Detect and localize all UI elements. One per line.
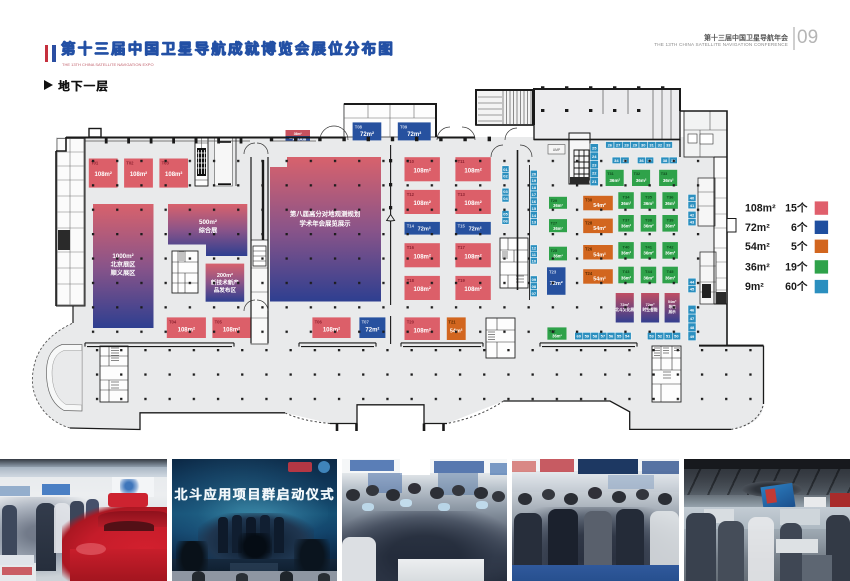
svg-text:T09: T09 <box>400 124 408 129</box>
svg-text:72m²: 72m² <box>745 222 770 234</box>
svg-text:108m²: 108m² <box>745 203 776 215</box>
svg-text:72m²: 72m² <box>407 131 421 138</box>
svg-text:15个: 15个 <box>785 202 808 215</box>
svg-text:5个: 5个 <box>791 240 808 253</box>
svg-text:31: 31 <box>649 142 654 147</box>
svg-text:9m²: 9m² <box>745 281 764 293</box>
svg-text:19个: 19个 <box>785 260 808 273</box>
svg-text:60个: 60个 <box>785 280 808 293</box>
svg-text:6个: 6个 <box>791 221 808 234</box>
svg-text:T08: T08 <box>355 124 363 129</box>
svg-text:27: 27 <box>616 142 621 147</box>
svg-text:32: 32 <box>658 142 663 147</box>
svg-text:26: 26 <box>608 142 613 147</box>
svg-text:28: 28 <box>624 142 629 147</box>
svg-text:29: 29 <box>633 142 638 147</box>
svg-text:25: 25 <box>592 146 597 151</box>
svg-text:33: 33 <box>666 142 671 147</box>
svg-text:54m²: 54m² <box>745 241 770 253</box>
svg-text:36m²: 36m² <box>745 261 770 273</box>
svg-text:36m²: 36m² <box>294 132 303 136</box>
svg-text:30: 30 <box>641 142 646 147</box>
